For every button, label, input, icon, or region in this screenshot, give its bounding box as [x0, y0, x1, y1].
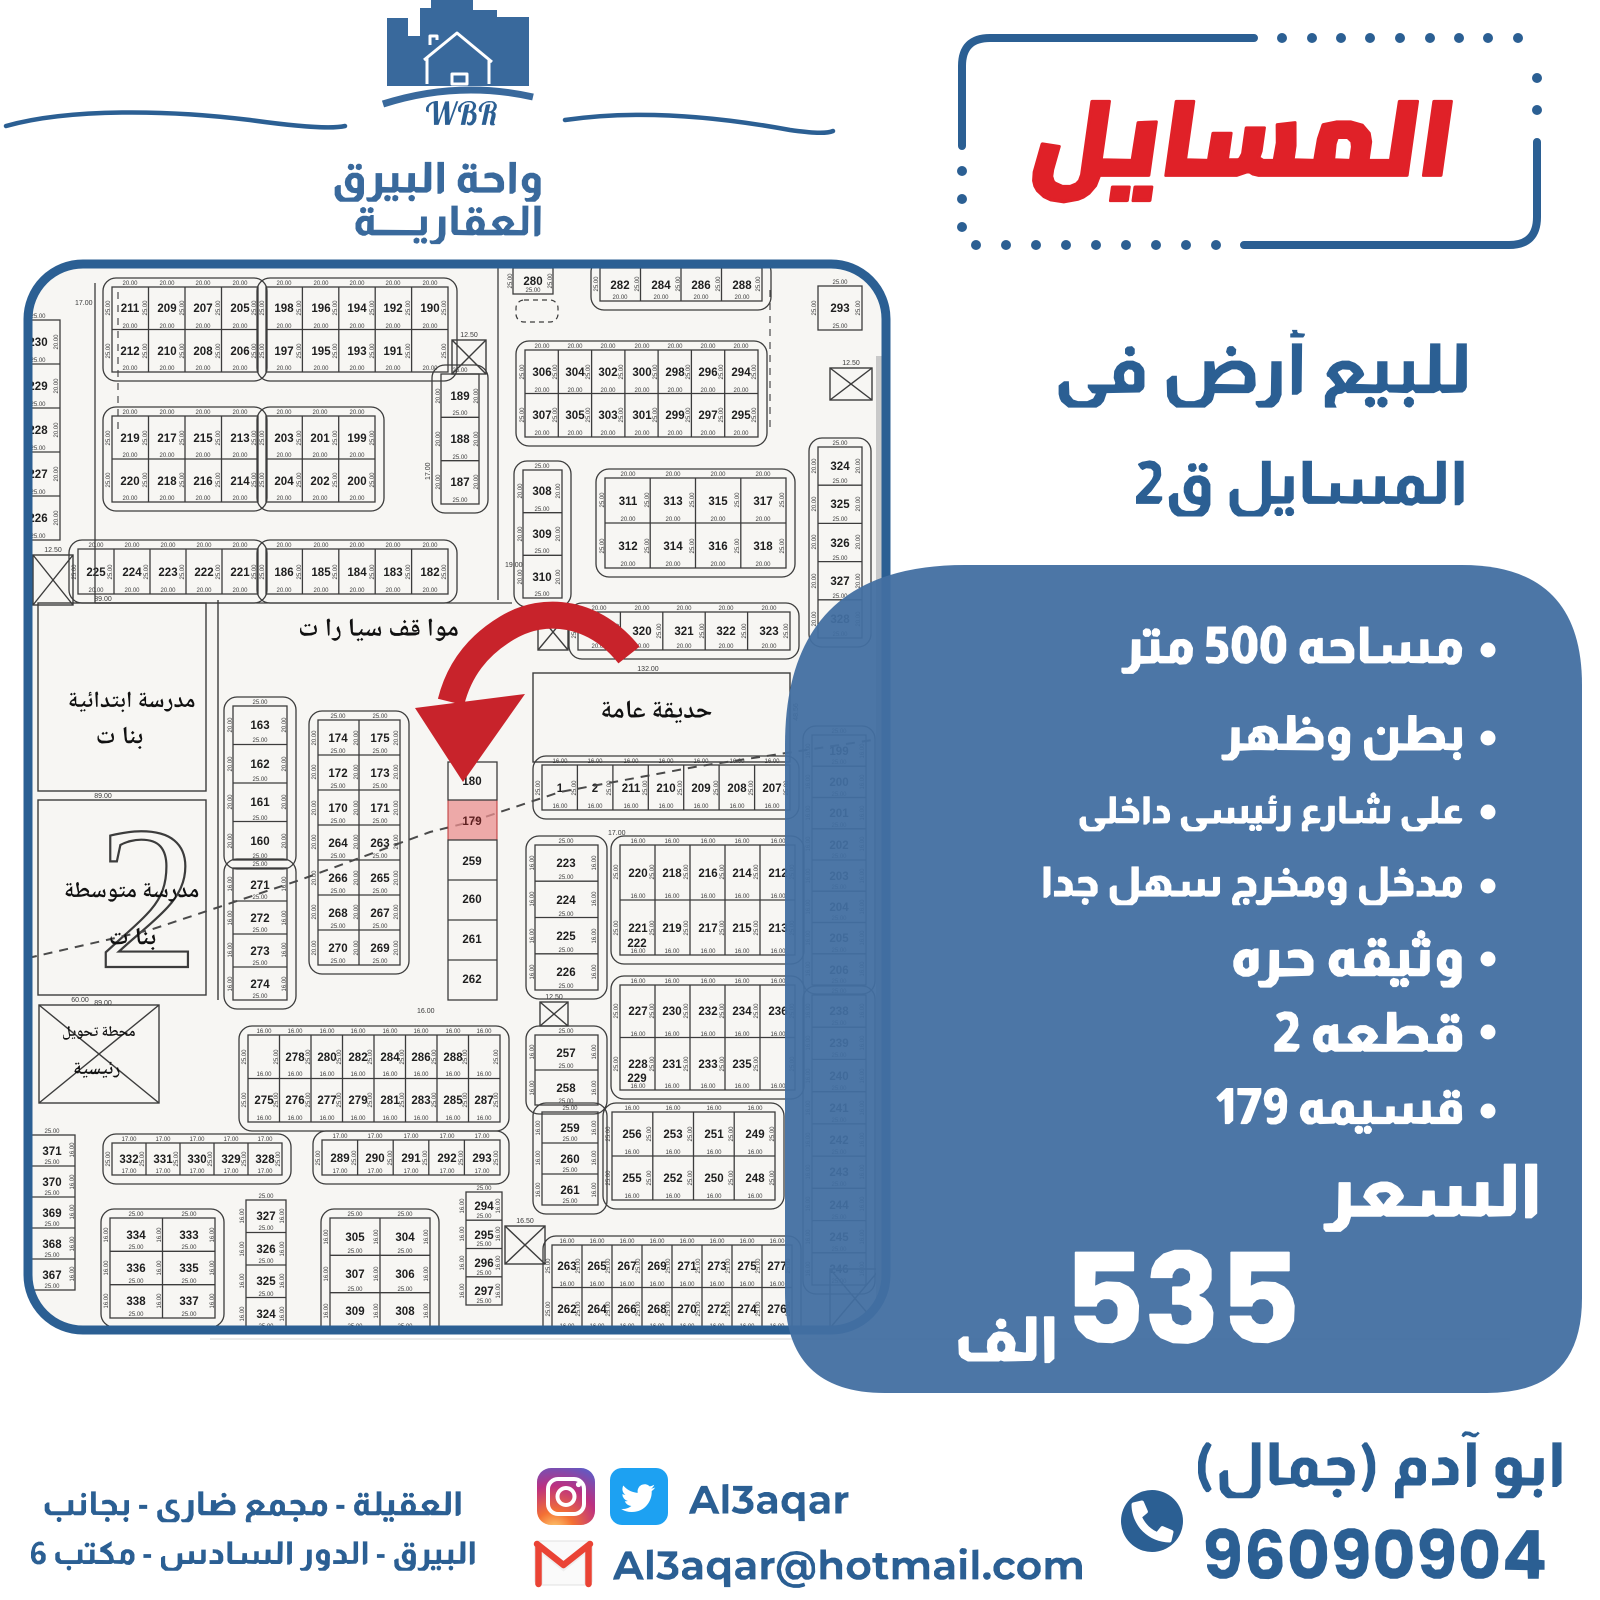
svg-text:25.00: 25.00	[494, 1092, 500, 1108]
svg-text:192: 192	[383, 303, 402, 315]
svg-text:20.00: 20.00	[195, 496, 211, 502]
svg-text:20.00: 20.00	[700, 431, 716, 437]
svg-text:16.00: 16.00	[424, 1266, 430, 1282]
svg-text:25.00: 25.00	[614, 920, 620, 936]
svg-text:25.00: 25.00	[252, 862, 268, 868]
svg-text:325: 325	[256, 1276, 276, 1288]
svg-text:25.00: 25.00	[333, 300, 339, 316]
svg-text:16.00: 16.00	[589, 1282, 605, 1288]
svg-text:175: 175	[370, 733, 390, 745]
svg-text:25.00: 25.00	[347, 1212, 363, 1218]
svg-text:16.00: 16.00	[228, 942, 234, 958]
svg-text:20.00: 20.00	[312, 870, 318, 886]
svg-text:20.00: 20.00	[856, 534, 862, 550]
svg-text:25.00: 25.00	[143, 430, 149, 446]
svg-text:16.00: 16.00	[350, 1072, 366, 1078]
svg-text:20.00: 20.00	[195, 366, 211, 372]
svg-text:17.00: 17.00	[155, 1137, 171, 1143]
svg-text:20.00: 20.00	[312, 904, 318, 920]
svg-text:190: 190	[420, 303, 439, 315]
svg-text:16.00: 16.00	[157, 1260, 163, 1276]
svg-text:16.00: 16.00	[240, 1306, 246, 1322]
svg-text:16.00: 16.00	[228, 910, 234, 926]
svg-text:25.00: 25.00	[144, 564, 150, 580]
svg-text:16.00: 16.00	[734, 949, 750, 955]
svg-text:20.00: 20.00	[755, 517, 771, 523]
svg-text:25.00: 25.00	[688, 1170, 694, 1186]
svg-text:300: 300	[632, 367, 651, 379]
svg-text:16.00: 16.00	[424, 1229, 430, 1245]
svg-text:25.00: 25.00	[756, 276, 762, 292]
svg-text:17.00: 17.00	[257, 1137, 273, 1143]
svg-text:25.00: 25.00	[106, 343, 112, 359]
svg-text:16.00: 16.00	[747, 1150, 763, 1156]
svg-text:25.00: 25.00	[252, 816, 268, 822]
svg-text:265: 265	[587, 1261, 607, 1273]
svg-text:16.00: 16.00	[70, 1142, 76, 1158]
svg-text:16.50: 16.50	[516, 1218, 534, 1225]
svg-text:333: 333	[179, 1230, 198, 1242]
svg-text:212: 212	[120, 346, 139, 358]
svg-text:17.00: 17.00	[332, 1134, 348, 1140]
svg-text:25.00: 25.00	[650, 864, 656, 880]
svg-text:20.00: 20.00	[312, 453, 328, 459]
svg-text:16.00: 16.00	[530, 891, 536, 907]
svg-text:20.00: 20.00	[122, 496, 138, 502]
svg-text:25.00: 25.00	[714, 780, 720, 796]
svg-text:16.00: 16.00	[240, 1208, 246, 1224]
svg-text:20.00: 20.00	[232, 281, 248, 287]
svg-text:20.00: 20.00	[122, 453, 138, 459]
svg-text:25.00: 25.00	[558, 839, 574, 845]
svg-text:25.00: 25.00	[606, 1301, 612, 1317]
svg-text:20.00: 20.00	[232, 496, 248, 502]
svg-text:16.00: 16.00	[496, 1198, 502, 1214]
svg-text:16.00: 16.00	[592, 928, 598, 944]
svg-text:20.00: 20.00	[620, 562, 636, 568]
svg-text:25.00: 25.00	[720, 920, 726, 936]
svg-text:16.00: 16.00	[769, 1282, 785, 1288]
svg-text:258: 258	[556, 1083, 576, 1095]
svg-text:25.00: 25.00	[558, 912, 574, 918]
svg-text:25.00: 25.00	[330, 854, 346, 860]
svg-text:20.00: 20.00	[312, 410, 328, 416]
svg-text:16.00: 16.00	[664, 979, 680, 985]
svg-text:214: 214	[230, 476, 250, 488]
svg-text:215: 215	[193, 433, 213, 445]
svg-text:305: 305	[345, 1232, 365, 1244]
svg-text:20.00: 20.00	[276, 410, 292, 416]
svg-text:25.00: 25.00	[636, 1301, 642, 1317]
svg-text:25.00: 25.00	[372, 714, 388, 720]
svg-text:317: 317	[753, 496, 772, 508]
svg-text:288: 288	[443, 1052, 463, 1064]
svg-text:25.00: 25.00	[546, 1258, 552, 1274]
svg-text:25.00: 25.00	[368, 1092, 374, 1108]
svg-text:20.00: 20.00	[534, 388, 550, 394]
svg-text:25.00: 25.00	[242, 1151, 248, 1167]
svg-text:17.00: 17.00	[189, 1137, 205, 1143]
svg-text:20.00: 20.00	[349, 281, 365, 287]
svg-text:284: 284	[651, 280, 671, 292]
svg-text:20.00: 20.00	[567, 431, 583, 437]
svg-text:20.00: 20.00	[385, 324, 401, 330]
svg-text:226: 226	[556, 967, 575, 979]
svg-text:16.00: 16.00	[747, 1194, 763, 1200]
svg-text:20.00: 20.00	[276, 496, 292, 502]
svg-text:20.00: 20.00	[394, 870, 400, 886]
svg-text:16.00: 16.00	[734, 979, 750, 985]
svg-text:25.00: 25.00	[44, 1284, 60, 1290]
svg-text:20.00: 20.00	[354, 834, 360, 850]
svg-text:20.00: 20.00	[228, 833, 234, 849]
svg-text:25.00: 25.00	[333, 564, 339, 580]
svg-text:212: 212	[768, 868, 787, 880]
svg-text:20.00: 20.00	[313, 543, 329, 549]
svg-text:20.00: 20.00	[88, 543, 104, 549]
svg-text:25.00: 25.00	[181, 1212, 197, 1218]
svg-text:20.00: 20.00	[228, 794, 234, 810]
svg-text:25.00: 25.00	[337, 1049, 343, 1065]
svg-text:25.00: 25.00	[586, 364, 592, 380]
svg-text:25.00: 25.00	[242, 1092, 248, 1108]
svg-text:16.00: 16.00	[70, 1236, 76, 1252]
svg-text:25.00: 25.00	[337, 1092, 343, 1108]
svg-text:172: 172	[328, 768, 347, 780]
svg-text:25.00: 25.00	[614, 1003, 620, 1019]
svg-text:286: 286	[411, 1052, 430, 1064]
svg-text:315: 315	[708, 496, 728, 508]
svg-text:25.00: 25.00	[653, 364, 659, 380]
svg-text:20.00: 20.00	[567, 344, 583, 350]
svg-text:16.00: 16.00	[706, 1150, 722, 1156]
svg-text:294: 294	[474, 1201, 494, 1213]
svg-text:216: 216	[193, 476, 212, 488]
svg-text:25.00: 25.00	[316, 1150, 322, 1166]
svg-text:25.00: 25.00	[252, 700, 268, 706]
svg-text:17.00: 17.00	[439, 1169, 455, 1175]
svg-text:306: 306	[532, 367, 551, 379]
svg-text:25.00: 25.00	[684, 864, 690, 880]
svg-text:16.00: 16.00	[496, 1226, 502, 1242]
svg-text:25.00: 25.00	[650, 920, 656, 936]
svg-text:25.00: 25.00	[606, 1170, 612, 1186]
svg-text:20.00: 20.00	[436, 431, 442, 447]
svg-text:25.00: 25.00	[562, 1137, 578, 1143]
svg-text:20.00: 20.00	[349, 366, 365, 372]
svg-text:257: 257	[556, 1048, 575, 1060]
svg-text:179: 179	[462, 816, 481, 828]
svg-text:20.00: 20.00	[600, 344, 616, 350]
svg-text:16.00: 16.00	[374, 1303, 380, 1319]
svg-text:25.00: 25.00	[678, 780, 684, 796]
svg-text:25.00: 25.00	[650, 1003, 656, 1019]
svg-text:25.00: 25.00	[400, 1049, 406, 1065]
svg-text:16.00: 16.00	[228, 976, 234, 992]
svg-text:20.00: 20.00	[276, 281, 292, 287]
svg-text:16.00: 16.00	[679, 1239, 695, 1245]
svg-text:16.00: 16.00	[413, 1029, 429, 1035]
svg-text:368: 368	[42, 1239, 62, 1251]
svg-text:16.00: 16.00	[734, 894, 750, 900]
svg-text:25.00: 25.00	[258, 1194, 274, 1200]
svg-text:16.00: 16.00	[280, 1306, 286, 1322]
svg-text:16.00: 16.00	[623, 804, 639, 810]
svg-text:224: 224	[122, 567, 142, 579]
svg-text:25.00: 25.00	[832, 441, 848, 447]
svg-text:20.00: 20.00	[567, 388, 583, 394]
svg-text:25.00: 25.00	[476, 1186, 492, 1192]
svg-text:25.00: 25.00	[832, 280, 848, 286]
svg-text:16.00: 16.00	[530, 855, 536, 871]
svg-text:25.00: 25.00	[452, 411, 468, 417]
svg-text:25.00: 25.00	[128, 1279, 144, 1285]
svg-text:308: 308	[532, 486, 552, 498]
svg-text:20.00: 20.00	[812, 458, 818, 474]
svg-text:25.00: 25.00	[476, 1271, 492, 1277]
svg-text:25.00: 25.00	[128, 1312, 144, 1318]
svg-text:25.00: 25.00	[647, 1126, 653, 1142]
svg-text:20.00: 20.00	[276, 324, 292, 330]
svg-text:291: 291	[401, 1153, 421, 1165]
svg-text:270: 270	[328, 943, 347, 955]
svg-text:25.00: 25.00	[726, 1258, 732, 1274]
svg-text:25.00: 25.00	[534, 507, 550, 513]
svg-text:321: 321	[674, 626, 694, 638]
svg-text:16.00: 16.00	[530, 1044, 536, 1060]
svg-text:16.00: 16.00	[649, 1282, 665, 1288]
svg-text:17.00: 17.00	[223, 1137, 239, 1143]
svg-text:20.00: 20.00	[733, 344, 749, 350]
svg-text:16.00: 16.00	[104, 1260, 110, 1276]
svg-text:16.00: 16.00	[664, 1084, 680, 1090]
svg-text:16.00: 16.00	[700, 1032, 716, 1038]
svg-text:16.00: 16.00	[630, 839, 646, 845]
svg-text:16.00: 16.00	[319, 1116, 335, 1122]
svg-text:160: 160	[250, 836, 269, 848]
svg-text:25.00: 25.00	[274, 1049, 280, 1065]
svg-text:16.00: 16.00	[619, 1239, 635, 1245]
svg-text:20.00: 20.00	[349, 410, 365, 416]
svg-text:16.00: 16.00	[413, 1072, 429, 1078]
svg-text:25.00: 25.00	[525, 288, 541, 294]
svg-text:25.00: 25.00	[143, 300, 149, 316]
svg-text:20.00: 20.00	[556, 526, 562, 542]
svg-text:25.00: 25.00	[572, 780, 578, 796]
svg-text:324: 324	[830, 461, 850, 473]
svg-text:20.00: 20.00	[313, 366, 329, 372]
svg-text:25.00: 25.00	[252, 895, 268, 901]
svg-text:25.00: 25.00	[856, 300, 862, 316]
svg-text:266: 266	[328, 873, 347, 885]
svg-text:16.00: 16.00	[536, 1120, 542, 1136]
svg-text:219: 219	[662, 923, 681, 935]
svg-text:20.00: 20.00	[232, 453, 248, 459]
svg-text:25.00: 25.00	[442, 300, 448, 316]
svg-text:16.00: 16.00	[709, 1282, 725, 1288]
svg-text:20.00: 20.00	[620, 472, 636, 478]
svg-text:220: 220	[120, 476, 139, 488]
svg-text:25.00: 25.00	[729, 1170, 735, 1186]
svg-text:20.00: 20.00	[394, 904, 400, 920]
svg-text:236: 236	[768, 1006, 787, 1018]
svg-text:25.00: 25.00	[558, 875, 574, 881]
svg-text:327: 327	[256, 1211, 275, 1223]
svg-text:16.00: 16.00	[665, 1194, 681, 1200]
svg-text:16.00: 16.00	[324, 1303, 330, 1319]
svg-text:25.00: 25.00	[546, 1301, 552, 1317]
svg-text:202: 202	[310, 476, 329, 488]
svg-text:25.00: 25.00	[181, 1245, 197, 1251]
svg-text:25.00: 25.00	[216, 472, 222, 488]
svg-text:25.00: 25.00	[252, 738, 268, 744]
svg-text:25.00: 25.00	[181, 1312, 197, 1318]
svg-text:25.00: 25.00	[494, 1150, 500, 1166]
svg-text:214: 214	[732, 868, 752, 880]
svg-text:20.00: 20.00	[232, 366, 248, 372]
svg-text:89.00: 89.00	[94, 596, 112, 603]
svg-text:16.00: 16.00	[445, 1072, 461, 1078]
svg-text:25.00: 25.00	[216, 300, 222, 316]
svg-text:174: 174	[328, 733, 348, 745]
svg-text:20.00: 20.00	[276, 366, 292, 372]
svg-text:370: 370	[42, 1177, 61, 1189]
svg-text:16.00: 16.00	[445, 1029, 461, 1035]
svg-text:25.00: 25.00	[242, 1049, 248, 1065]
svg-text:1: 1	[557, 783, 564, 795]
svg-text:20.00: 20.00	[534, 431, 550, 437]
svg-text:25.00: 25.00	[30, 314, 46, 320]
svg-text:20.00: 20.00	[122, 324, 138, 330]
svg-text:20.00: 20.00	[600, 388, 616, 394]
svg-text:25.00: 25.00	[690, 538, 696, 554]
svg-text:16.00: 16.00	[665, 1106, 681, 1112]
svg-text:171: 171	[370, 803, 390, 815]
svg-text:16.00: 16.00	[424, 1303, 430, 1319]
svg-text:25.00: 25.00	[372, 959, 388, 965]
svg-text:326: 326	[256, 1244, 275, 1256]
svg-text:259: 259	[560, 1123, 579, 1135]
svg-text:207: 207	[762, 783, 781, 795]
svg-text:20.00: 20.00	[718, 644, 734, 650]
svg-text:25.00: 25.00	[749, 780, 755, 796]
svg-text:269: 269	[647, 1261, 666, 1273]
svg-text:369: 369	[42, 1208, 61, 1220]
svg-text:25.00: 25.00	[143, 472, 149, 488]
svg-text:217: 217	[698, 923, 717, 935]
svg-text:25.00: 25.00	[274, 1092, 280, 1108]
svg-text:17.00: 17.00	[223, 1169, 239, 1175]
svg-text:208: 208	[193, 346, 213, 358]
svg-text:20.00: 20.00	[394, 730, 400, 746]
svg-text:263: 263	[557, 1261, 576, 1273]
svg-text:16.00: 16.00	[729, 804, 745, 810]
svg-text:16.00: 16.00	[282, 942, 288, 958]
svg-text:16.00: 16.00	[649, 1239, 665, 1245]
svg-text:25.00: 25.00	[508, 273, 514, 289]
svg-text:20.00: 20.00	[665, 472, 681, 478]
svg-text:25.00: 25.00	[752, 407, 758, 423]
svg-text:16.00: 16.00	[709, 1239, 725, 1245]
svg-text:316: 316	[708, 541, 727, 553]
svg-text:16.00: 16.00	[559, 1239, 575, 1245]
svg-text:20.00: 20.00	[349, 588, 365, 594]
svg-text:25.00: 25.00	[44, 1129, 60, 1135]
svg-text:265: 265	[370, 873, 390, 885]
svg-text:326: 326	[830, 538, 849, 550]
svg-text:293: 293	[472, 1153, 491, 1165]
svg-text:25.00: 25.00	[406, 300, 412, 316]
svg-text:17.00: 17.00	[403, 1169, 419, 1175]
svg-text:25.00: 25.00	[696, 1258, 702, 1274]
svg-text:20.00: 20.00	[160, 543, 176, 549]
svg-text:20.00: 20.00	[422, 324, 438, 330]
svg-text:25.00: 25.00	[258, 1226, 274, 1232]
svg-text:16.00: 16.00	[319, 1072, 335, 1078]
svg-text:16.00: 16.00	[382, 1116, 398, 1122]
svg-text:20.00: 20.00	[282, 717, 288, 733]
svg-text:209: 209	[691, 783, 710, 795]
svg-text:20.00: 20.00	[282, 794, 288, 810]
svg-text:223: 223	[158, 567, 177, 579]
svg-text:20.00: 20.00	[474, 474, 480, 490]
svg-text:25.00: 25.00	[614, 864, 620, 880]
svg-text:16.00: 16.00	[476, 1029, 492, 1035]
svg-text:2: 2	[97, 785, 200, 1012]
svg-text:20.00: 20.00	[196, 588, 212, 594]
svg-text:25.00: 25.00	[128, 1212, 144, 1218]
svg-text:296: 296	[698, 367, 717, 379]
svg-text:218: 218	[157, 476, 177, 488]
svg-text:25.00: 25.00	[297, 472, 303, 488]
svg-text:275: 275	[737, 1261, 757, 1273]
svg-text:25.00: 25.00	[368, 1049, 374, 1065]
svg-text:25.00: 25.00	[370, 343, 376, 359]
svg-text:25.00: 25.00	[406, 564, 412, 580]
svg-text:262: 262	[462, 974, 481, 986]
svg-text:16.00: 16.00	[706, 1106, 722, 1112]
svg-text:216: 216	[698, 868, 717, 880]
svg-text:25.00: 25.00	[143, 343, 149, 359]
svg-text:25.00: 25.00	[650, 1056, 656, 1072]
svg-text:16.00: 16.00	[536, 1150, 542, 1166]
svg-text:20.00: 20.00	[122, 410, 138, 416]
svg-text:25.00: 25.00	[258, 1259, 274, 1265]
svg-text:211: 211	[622, 783, 641, 795]
svg-text:328: 328	[255, 1154, 275, 1166]
svg-text:20.00: 20.00	[54, 378, 60, 394]
svg-text:16.00: 16.00	[496, 1255, 502, 1271]
svg-text:20.00: 20.00	[385, 366, 401, 372]
svg-text:25.00: 25.00	[330, 889, 346, 895]
svg-text:20.00: 20.00	[312, 800, 318, 816]
svg-text:25.00: 25.00	[372, 749, 388, 755]
svg-text:299: 299	[665, 410, 684, 422]
svg-text:297: 297	[474, 1286, 493, 1298]
svg-text:16.00: 16.00	[210, 1293, 216, 1309]
svg-text:310: 310	[532, 572, 551, 584]
svg-text:329: 329	[221, 1154, 240, 1166]
svg-text:16.00: 16.00	[157, 1293, 163, 1309]
svg-text:274: 274	[737, 1304, 757, 1316]
svg-text:25.00: 25.00	[260, 300, 266, 316]
svg-text:20.00: 20.00	[124, 543, 140, 549]
svg-text:25.00: 25.00	[832, 556, 848, 562]
svg-text:17.00: 17.00	[403, 1134, 419, 1140]
svg-text:16.00: 16.00	[624, 1194, 640, 1200]
svg-text:222: 222	[627, 938, 646, 950]
svg-text:16.00: 16.00	[287, 1072, 303, 1078]
